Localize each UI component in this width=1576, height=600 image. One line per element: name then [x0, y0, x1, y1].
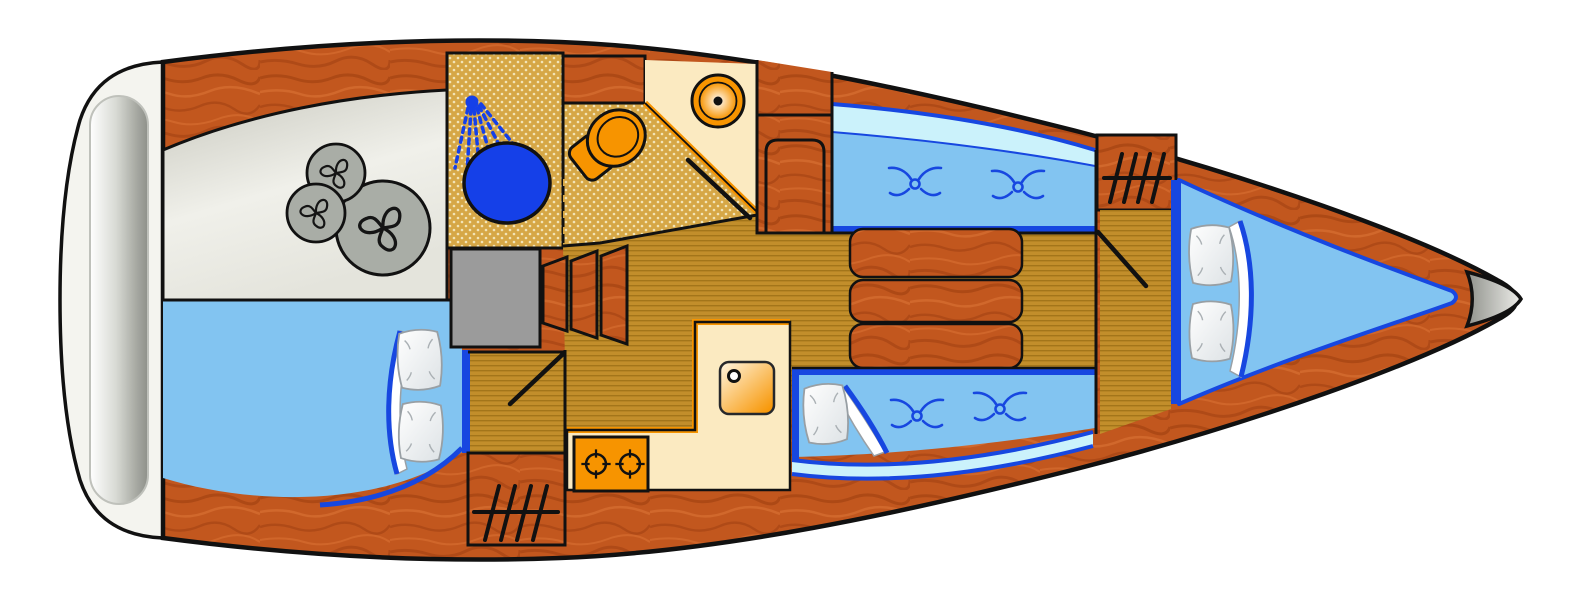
propeller-circle-left: [287, 184, 345, 242]
pillow-icon: [1188, 224, 1234, 285]
starboard-settee: [832, 104, 1095, 233]
pillow-icon: [398, 401, 444, 462]
galley-vent-block: [468, 453, 565, 545]
transom-ladder: [90, 96, 148, 504]
washbasin-icon: [692, 75, 744, 127]
swim-platform: [60, 62, 163, 538]
forward-cabin: [1096, 135, 1179, 434]
pillow-icon: [1189, 301, 1234, 362]
saloon-table: [850, 229, 1022, 368]
head-bulkhead: [563, 56, 645, 103]
galley-sink-icon: [720, 362, 774, 414]
settee-locker: [757, 60, 832, 233]
aft-cabin-berth: [163, 300, 470, 505]
head-shower: [447, 53, 563, 248]
shower-basin: [464, 143, 550, 223]
engine-compartment: [451, 249, 540, 347]
pillow-icon: [396, 329, 443, 391]
pillow-icon: [801, 382, 850, 446]
floorplan-drawing: [0, 0, 1576, 600]
bow-anchor-fitting: [1467, 272, 1521, 326]
boat-floorplan-canvas: [0, 0, 1576, 600]
stove: [574, 437, 648, 491]
